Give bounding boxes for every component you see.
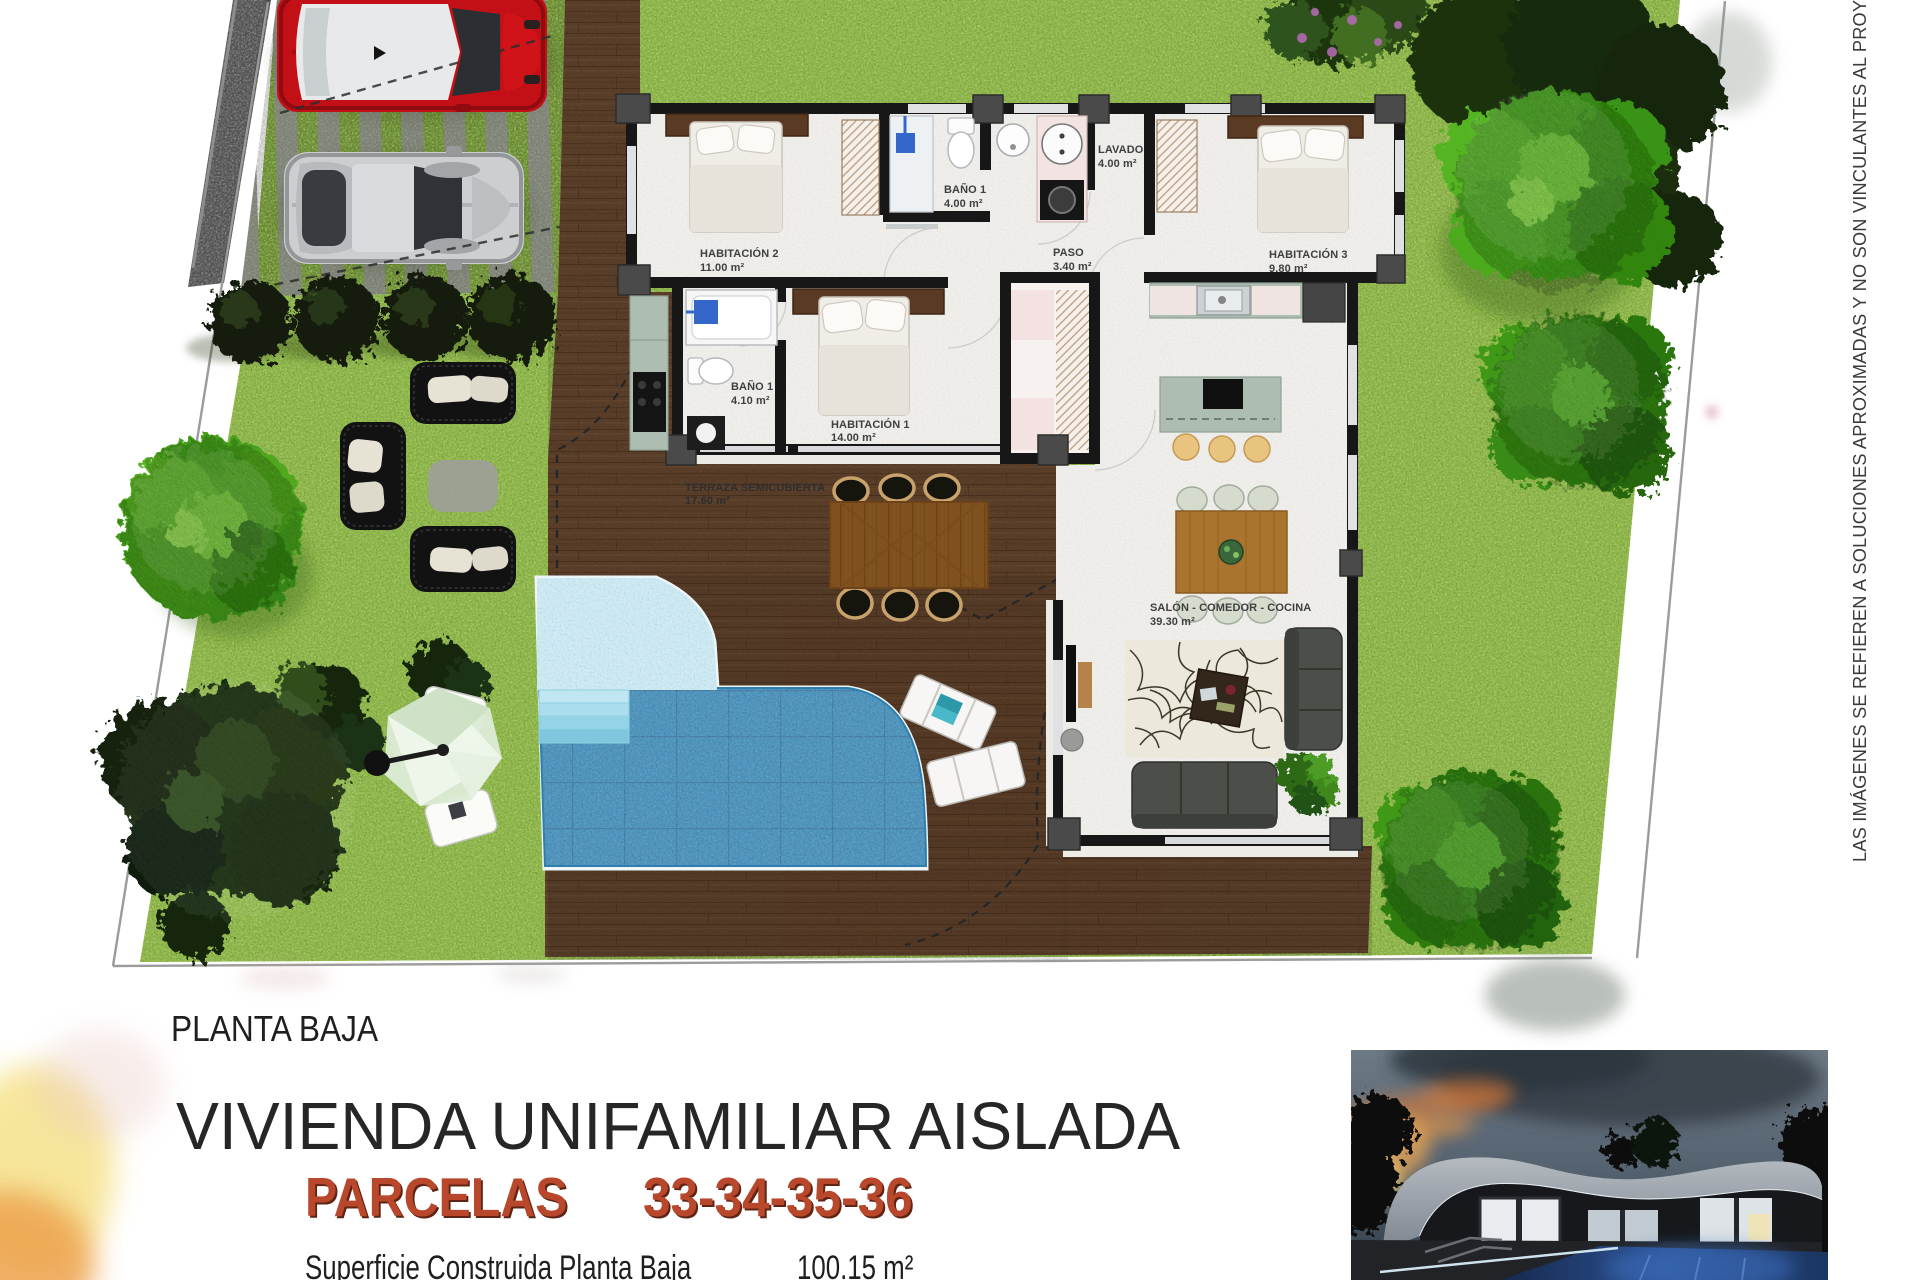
svg-text:TERRAZA SEMICUBIERTA: TERRAZA SEMICUBIERTA (685, 482, 825, 494)
svg-text:SALÓN - COMEDOR - COCINA: SALÓN - COMEDOR - COCINA (1150, 601, 1311, 614)
svg-text:9.80 m²: 9.80 m² (1269, 263, 1308, 275)
svg-text:PASO: PASO (1053, 247, 1084, 259)
svg-text:HABITACIÓN 3: HABITACIÓN 3 (1269, 248, 1348, 261)
svg-text:HABITACIÓN 1: HABITACIÓN 1 (831, 418, 910, 431)
svg-text:LAS IMÁGENES SE REFIEREN A SOL: LAS IMÁGENES SE REFIEREN A SOLUCIONES AP… (1850, 0, 1870, 862)
svg-text:PLANTA BAJA: PLANTA BAJA (171, 1009, 378, 1049)
svg-text:BAÑO 1: BAÑO 1 (731, 380, 773, 393)
svg-text:4.00 m²: 4.00 m² (944, 198, 983, 210)
svg-text:17.60 m²: 17.60 m² (685, 495, 730, 507)
svg-text:LAVADO: LAVADO (1098, 144, 1144, 156)
svg-text:4.00 m²: 4.00 m² (1098, 158, 1137, 170)
svg-text:3.40 m²: 3.40 m² (1053, 261, 1092, 273)
svg-text:HABITACIÓN 2: HABITACIÓN 2 (700, 247, 779, 260)
svg-text:VIVIENDA UNIFAMILIAR AISLADA: VIVIENDA UNIFAMILIAR AISLADA (176, 1089, 1180, 1163)
svg-text:14.00 m²: 14.00 m² (831, 432, 876, 444)
svg-text:4.10 m²: 4.10 m² (731, 395, 770, 407)
svg-text:Superficie Construida Planta B: Superficie Construida Planta Baja (305, 1250, 691, 1280)
svg-text:100.15 m²: 100.15 m² (797, 1250, 913, 1280)
svg-text:33-34-35-36: 33-34-35-36 (643, 1168, 913, 1229)
svg-text:11.00 m²: 11.00 m² (700, 262, 744, 274)
svg-text:PARCELAS: PARCELAS (305, 1166, 568, 1228)
svg-text:39.30 m²: 39.30 m² (1150, 616, 1195, 628)
svg-text:BAÑO 1: BAÑO 1 (944, 183, 986, 196)
